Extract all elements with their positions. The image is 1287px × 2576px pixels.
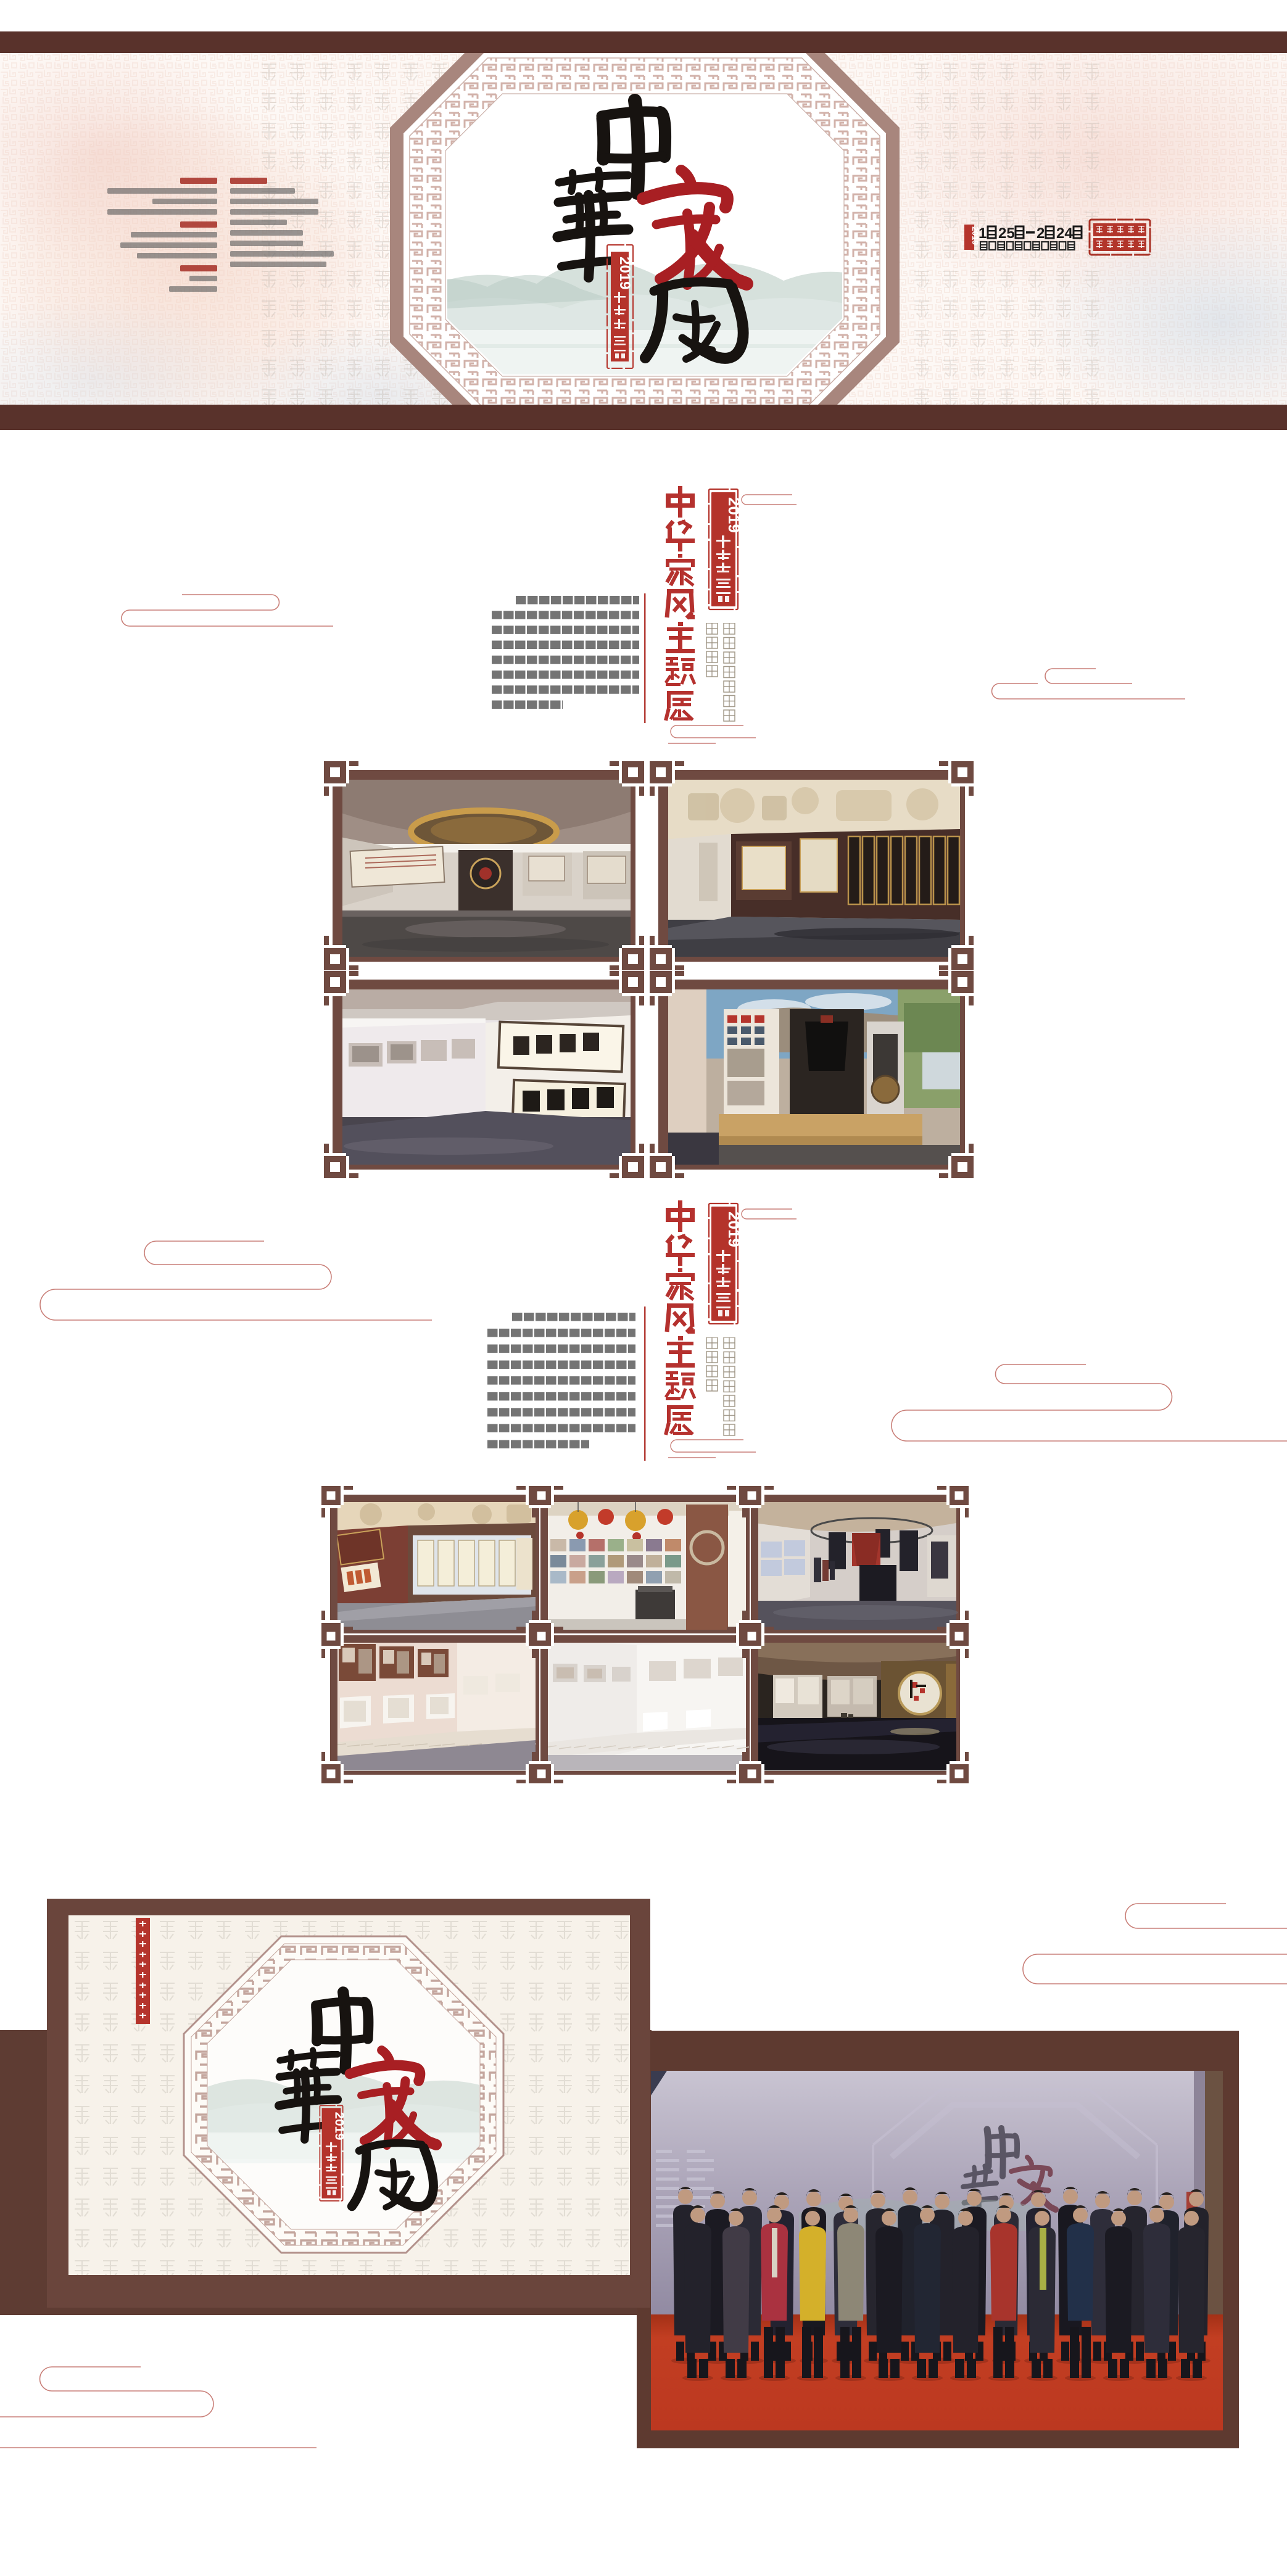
svg-text:1: 1: [979, 225, 987, 242]
svg-text:2019: 2019: [725, 497, 740, 533]
svg-text:24: 24: [1056, 225, 1073, 242]
svg-text:2019: 2019: [725, 1212, 740, 1247]
svg-text:2019: 2019: [333, 2112, 344, 2140]
svg-text:2019: 2019: [616, 257, 633, 289]
svg-text:2: 2: [1037, 225, 1045, 242]
svg-text:25: 25: [998, 225, 1015, 242]
